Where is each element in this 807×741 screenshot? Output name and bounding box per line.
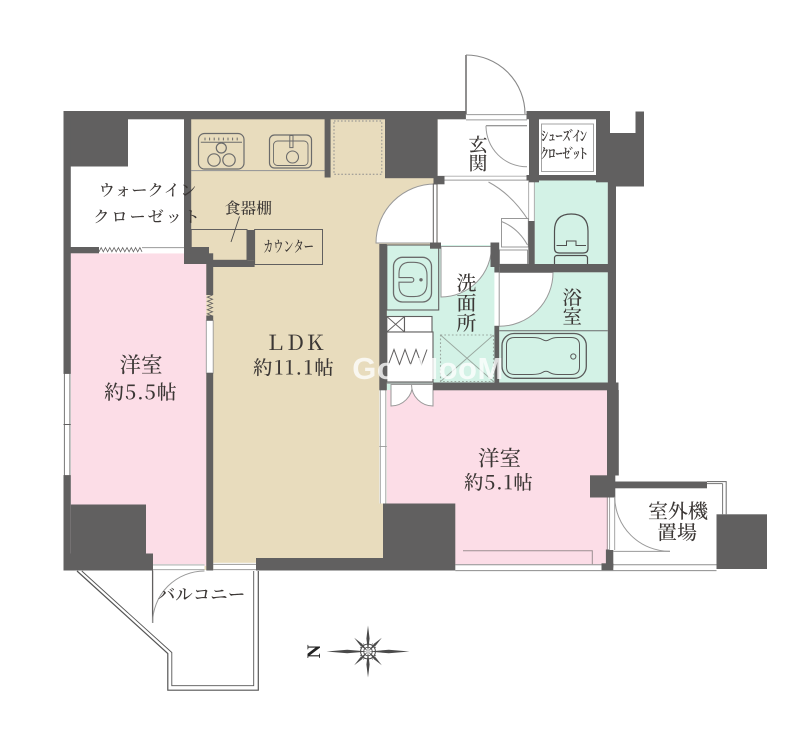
svg-text:N: N [304, 644, 325, 658]
svg-text:GooHooM: GooHooM [352, 351, 504, 386]
